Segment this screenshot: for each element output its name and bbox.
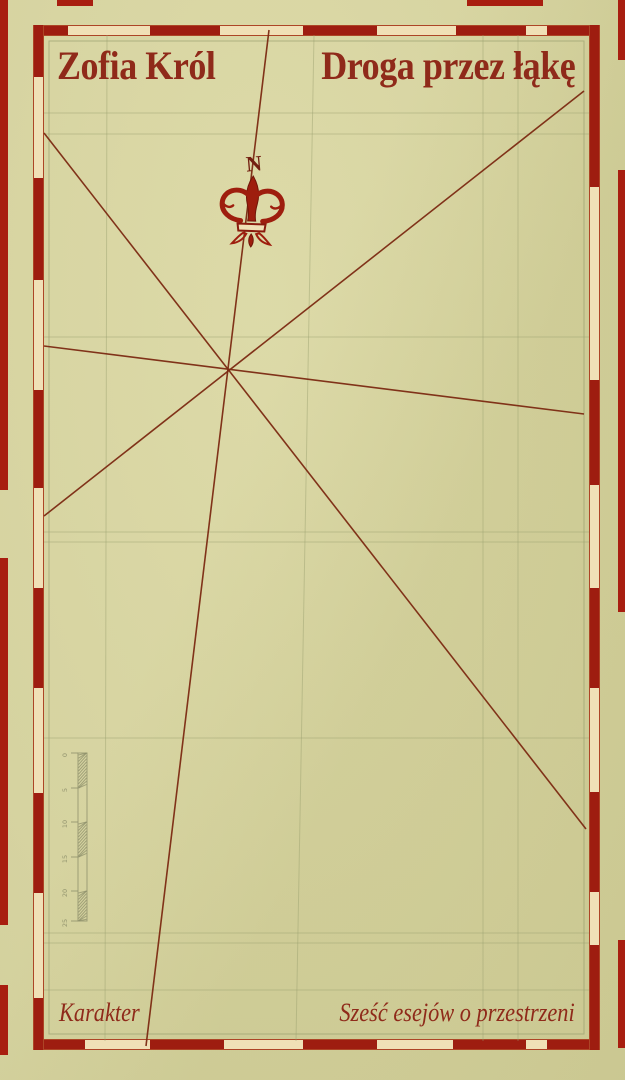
- svg-text:10: 10: [61, 820, 69, 828]
- svg-text:20: 20: [61, 889, 69, 897]
- author-name: Zofia Król: [57, 46, 215, 86]
- svg-text:25: 25: [61, 919, 69, 927]
- book-title: Droga przez łąkę: [321, 46, 575, 86]
- book-cover: 0510152025 Zofia Król Droga przez łąkę N…: [0, 0, 625, 1080]
- publisher-name: Karakter: [59, 1000, 140, 1026]
- fleur-de-lis-icon: [215, 171, 290, 251]
- svg-text:5: 5: [61, 788, 69, 792]
- svg-text:15: 15: [61, 855, 69, 863]
- book-subtitle: Sześć esejów o przestrzeni: [340, 1000, 575, 1026]
- map-artwork: 0510152025: [0, 0, 625, 1080]
- svg-text:0: 0: [61, 753, 69, 757]
